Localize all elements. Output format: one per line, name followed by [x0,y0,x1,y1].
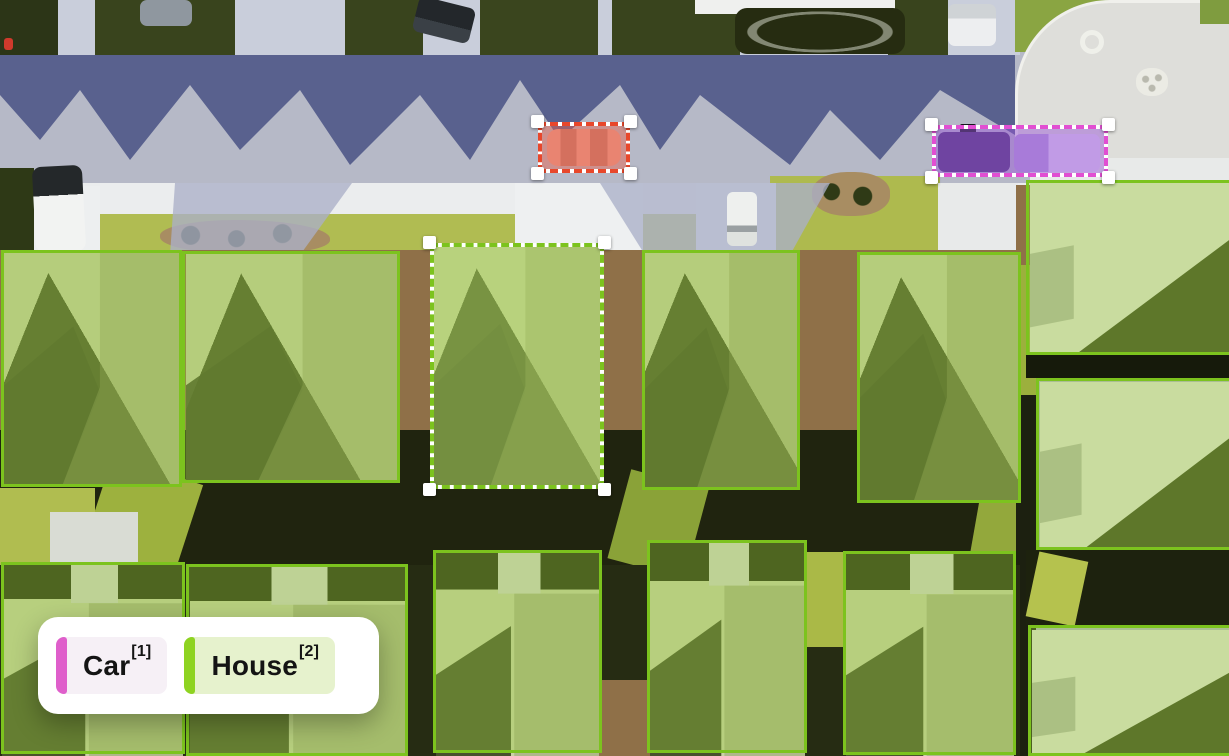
bbox-house-2[interactable] [182,251,400,483]
legend-label-house: House [211,650,298,682]
house-color-bar [184,637,195,694]
bbox-house-6[interactable] [1026,180,1229,355]
annotation-canvas[interactable]: Car [1] House [2] [0,0,1229,756]
bbox-house-7[interactable] [1036,378,1229,550]
resize-handle-tr[interactable] [624,115,637,128]
bbox-house-11[interactable] [647,540,807,753]
resize-handle-tl[interactable] [531,115,544,128]
class-legend: Car [1] House [2] [38,617,379,714]
resize-handle-tr[interactable] [598,236,611,249]
bbox-house-10[interactable] [433,550,602,753]
bbox-house-5[interactable] [857,252,1021,503]
bbox-house-3[interactable] [430,243,604,489]
legend-chip-car[interactable]: Car [1] [56,637,167,694]
resize-handle-br[interactable] [624,167,637,180]
car-color-bar [56,637,67,694]
resize-handle-tr[interactable] [1102,118,1115,131]
bbox-car-1[interactable] [538,122,630,173]
legend-hotkey-house: [2] [299,643,319,661]
bbox-house-4[interactable] [642,250,800,490]
resize-handle-bl[interactable] [423,483,436,496]
bbox-car-2[interactable] [932,125,1108,177]
resize-handle-br[interactable] [598,483,611,496]
legend-chip-house[interactable]: House [2] [184,637,335,694]
legend-hotkey-car: [1] [131,643,151,661]
resize-handle-bl[interactable] [531,167,544,180]
bbox-house-13[interactable] [1028,625,1229,756]
resize-handle-tl[interactable] [423,236,436,249]
legend-label-car: Car [83,650,130,682]
bbox-house-12[interactable] [843,551,1016,755]
resize-handle-tl[interactable] [925,118,938,131]
resize-handle-br[interactable] [1102,171,1115,184]
resize-handle-bl[interactable] [925,171,938,184]
bbox-house-1[interactable] [1,250,182,487]
